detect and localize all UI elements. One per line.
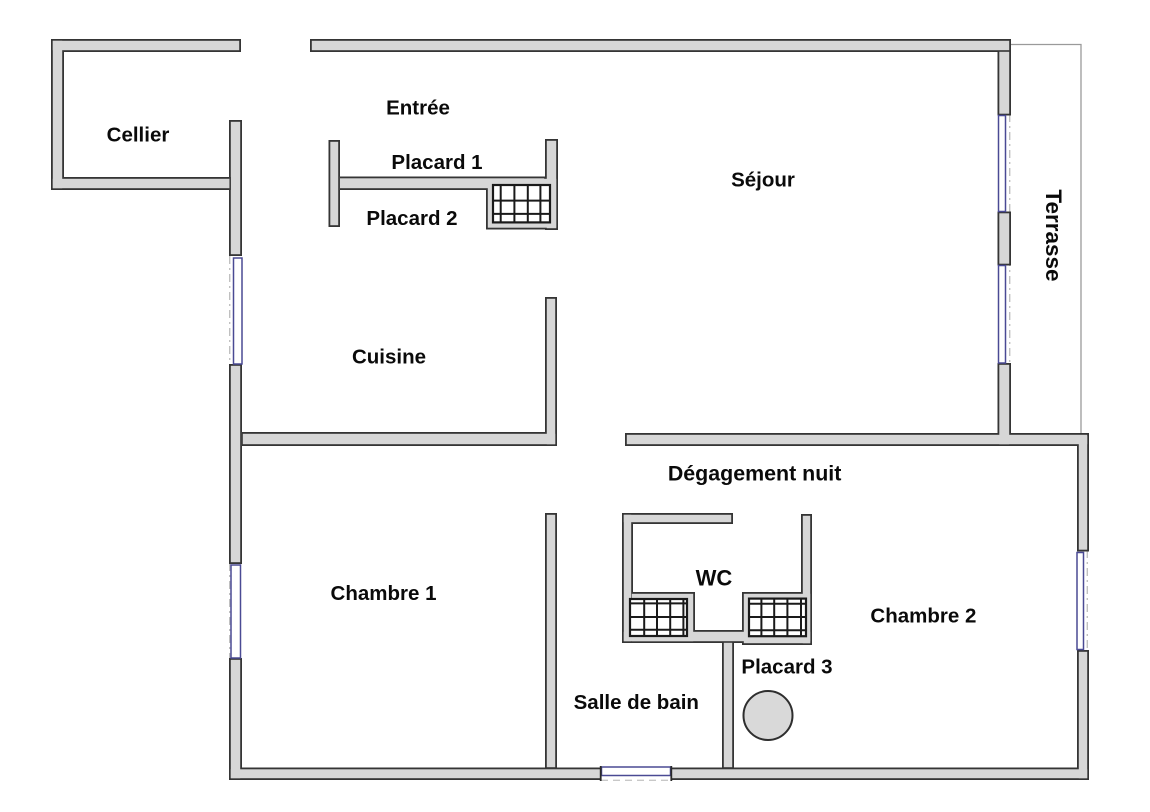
svg-text:Entrée: Entrée [386, 97, 450, 120]
svg-text:Terrasse: Terrasse [1041, 189, 1066, 281]
svg-text:Placard 1: Placard 1 [391, 151, 482, 174]
svg-text:Chambre 1: Chambre 1 [331, 582, 437, 605]
svg-text:Chambre 2: Chambre 2 [870, 605, 976, 628]
svg-text:Dégagement nuit: Dégagement nuit [668, 462, 842, 486]
svg-text:Placard 2: Placard 2 [366, 207, 457, 230]
svg-text:Salle de bain: Salle de bain [574, 691, 699, 714]
svg-text:Séjour: Séjour [731, 168, 795, 191]
svg-text:Placard 3: Placard 3 [741, 655, 832, 678]
svg-text:Cuisine: Cuisine [352, 346, 426, 369]
svg-text:Cellier: Cellier [107, 124, 170, 147]
svg-text:WC: WC [696, 566, 733, 591]
